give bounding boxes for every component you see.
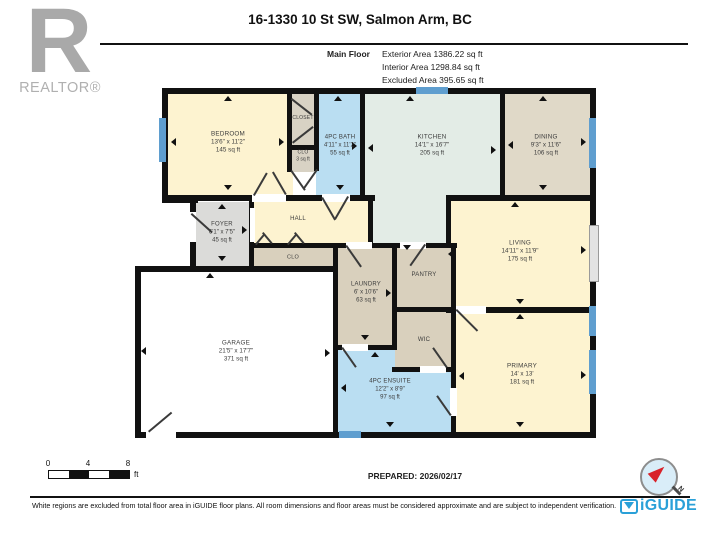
room-label-line: CLOSET	[292, 115, 313, 122]
room-label-line: 21'5" x 17'7"	[219, 348, 254, 356]
camera-arrow-up	[539, 92, 547, 101]
camera-arrow-down	[224, 185, 232, 194]
wall-segment	[446, 195, 451, 247]
room-label-line: GARAGE	[219, 340, 254, 348]
camera-arrow-right	[581, 246, 590, 254]
door-opening	[420, 366, 446, 373]
footer-divider	[30, 496, 690, 498]
iguide-logo-text: iGUIDE	[640, 497, 697, 515]
room-label-line: 97 sq ft	[369, 394, 411, 402]
room-label-line: 14' x 13'	[507, 371, 537, 379]
scale-segment	[109, 471, 129, 478]
door-opening	[146, 431, 176, 439]
iguide-icon-glyph	[624, 502, 634, 509]
room-hall	[253, 198, 371, 246]
camera-arrow-right	[279, 138, 288, 146]
camera-arrow-left	[337, 384, 346, 392]
scale-segment	[89, 471, 109, 478]
wall-segment	[314, 91, 319, 171]
camera-arrow-down	[336, 185, 344, 194]
room-label-bedroom: BEDROOM13'6" x 11'2"145 sq ft	[211, 131, 245, 156]
camera-arrow-down	[516, 422, 524, 431]
floor-plan: BEDROOM13'6" x 11'2"145 sq ftCLOSETCLO3 …	[0, 0, 720, 540]
room-label-kitchen: KITCHEN14'1" x 16'7"205 sq ft	[415, 134, 450, 159]
room-label-line: 175 sq ft	[501, 256, 538, 264]
disclaimer-text: White regions are excluded from total fl…	[32, 501, 632, 510]
room-label-line: WIC	[418, 337, 430, 345]
room-label-hall: HALL	[290, 216, 306, 224]
prepared-date: PREPARED: 2026/02/17	[368, 471, 462, 481]
wall-segment	[333, 243, 338, 437]
room-label-line: 181 sq ft	[507, 379, 537, 387]
window	[159, 118, 166, 162]
room-label-line: 63 sq ft	[351, 297, 381, 305]
room-label-line: 371 sq ft	[219, 356, 254, 364]
scale-tick-8: 8	[126, 459, 130, 468]
camera-arrow-down	[539, 185, 547, 194]
room-label-line: 6' x 10'6"	[351, 289, 381, 297]
wall-segment	[446, 195, 596, 201]
scale-segment	[69, 471, 89, 478]
door-opening	[250, 208, 255, 242]
patio-door	[589, 225, 599, 282]
wall-segment	[287, 91, 292, 172]
window	[339, 431, 361, 438]
camera-arrow-up	[406, 92, 414, 101]
room-label-wic: WIC	[418, 337, 430, 345]
scale-segment	[49, 471, 69, 478]
room-label-closet: CLOSET	[292, 115, 313, 122]
camera-arrow-up	[334, 92, 342, 101]
camera-arrow-left	[455, 372, 464, 380]
wall-segment	[135, 266, 338, 272]
room-label-line: LAUNDRY	[351, 281, 381, 289]
room-label-line: BEDROOM	[211, 131, 245, 139]
window	[589, 306, 596, 336]
camera-arrow-left	[364, 144, 373, 152]
window	[416, 87, 448, 94]
scale-bar	[48, 470, 130, 479]
camera-arrow-up	[511, 198, 519, 207]
room-label-foyer: FOYER6'1" x 7'5"45 sq ft	[209, 221, 235, 244]
room-label-line: 145 sq ft	[211, 147, 245, 155]
wall-segment	[368, 198, 373, 247]
room-label-closet-small: CLO3 sq ft	[296, 150, 310, 163]
camera-arrow-right	[581, 371, 590, 379]
room-label-line: 13'6" x 11'2"	[211, 139, 245, 147]
room-label-line: 3 sq ft	[296, 156, 310, 163]
wall-segment	[135, 432, 596, 438]
room-label-line: 4'11" x 11'2"	[324, 142, 356, 150]
camera-arrow-down	[386, 422, 394, 431]
scale-tick-4: 4	[86, 459, 90, 468]
camera-arrow-right	[242, 226, 251, 234]
room-label-line: PRIMARY	[507, 363, 537, 371]
camera-arrow-up	[218, 200, 226, 209]
room-label-bath: 4PC BATH4'11" x 11'2"55 sq ft	[324, 134, 356, 157]
camera-arrow-up	[206, 269, 214, 278]
window	[589, 350, 596, 394]
room-kitchen-ext	[371, 195, 448, 246]
camera-arrow-up	[224, 92, 232, 101]
door-opening	[252, 194, 286, 202]
camera-arrow-down	[361, 335, 369, 344]
room-label-pantry: PANTRY	[412, 272, 437, 280]
camera-arrow-left	[137, 347, 146, 355]
camera-arrow-left	[444, 250, 453, 258]
room-label-line: 45 sq ft	[209, 237, 235, 245]
room-label-laundry: LAUNDRY6' x 10'6"63 sq ft	[351, 281, 381, 304]
room-label-line: CLO	[296, 150, 310, 157]
room-label-line: DINING	[531, 134, 562, 142]
iguide-logo: iGUIDE	[620, 497, 697, 515]
room-label-line: 4PC BATH	[324, 134, 356, 142]
door-opening	[346, 242, 372, 249]
camera-arrow-right	[491, 146, 500, 154]
room-label-line: 106 sq ft	[531, 150, 562, 158]
camera-arrow-right	[386, 289, 395, 297]
room-label-line: KITCHEN	[415, 134, 450, 142]
camera-arrow-left	[167, 138, 176, 146]
room-label-line: 12'2" x 8'9"	[369, 386, 411, 394]
room-label-line: 14'1" x 16'7"	[415, 142, 450, 150]
room-label-line: 205 sq ft	[415, 150, 450, 158]
room-label-closet-row: CLO	[287, 254, 299, 261]
camera-arrow-down	[516, 299, 524, 308]
room-label-line: HALL	[290, 216, 306, 224]
scale-tick-0: 0	[46, 459, 50, 468]
room-label-line: CLO	[287, 254, 299, 261]
scale-unit: ft	[134, 470, 138, 479]
room-label-line: 4PC ENSUITE	[369, 378, 411, 386]
room-label-line: PANTRY	[412, 272, 437, 280]
camera-arrow-right	[581, 138, 590, 146]
door-opening	[450, 388, 457, 416]
room-label-dining: DINING9'3" x 11'6"106 sq ft	[531, 134, 562, 159]
camera-arrow-right	[325, 349, 334, 357]
room-label-line: 55 sq ft	[324, 150, 356, 158]
room-label-garage: GARAGE21'5" x 17'7"371 sq ft	[219, 340, 254, 365]
room-label-line: LIVING	[501, 240, 538, 248]
room-label-line: FOYER	[209, 221, 235, 229]
camera-arrow-up	[371, 348, 379, 357]
camera-arrow-up	[516, 310, 524, 319]
room-label-living: LIVING14'11" x 11'9"175 sq ft	[501, 240, 538, 265]
room-label-line: 14'11" x 11'9"	[501, 248, 538, 256]
door-opening	[342, 344, 368, 351]
room-label-line: 6'1" x 7'5"	[209, 229, 235, 237]
room-label-primary: PRIMARY14' x 13'181 sq ft	[507, 363, 537, 388]
camera-arrow-left	[504, 141, 513, 149]
camera-arrow-down	[218, 256, 226, 265]
camera-arrow-down	[403, 245, 411, 254]
room-label-ensuite: 4PC ENSUITE12'2" x 8'9"97 sq ft	[369, 378, 411, 401]
room-label-line: 9'3" x 11'6"	[531, 142, 562, 150]
iguide-icon	[620, 499, 638, 514]
window	[589, 118, 596, 168]
